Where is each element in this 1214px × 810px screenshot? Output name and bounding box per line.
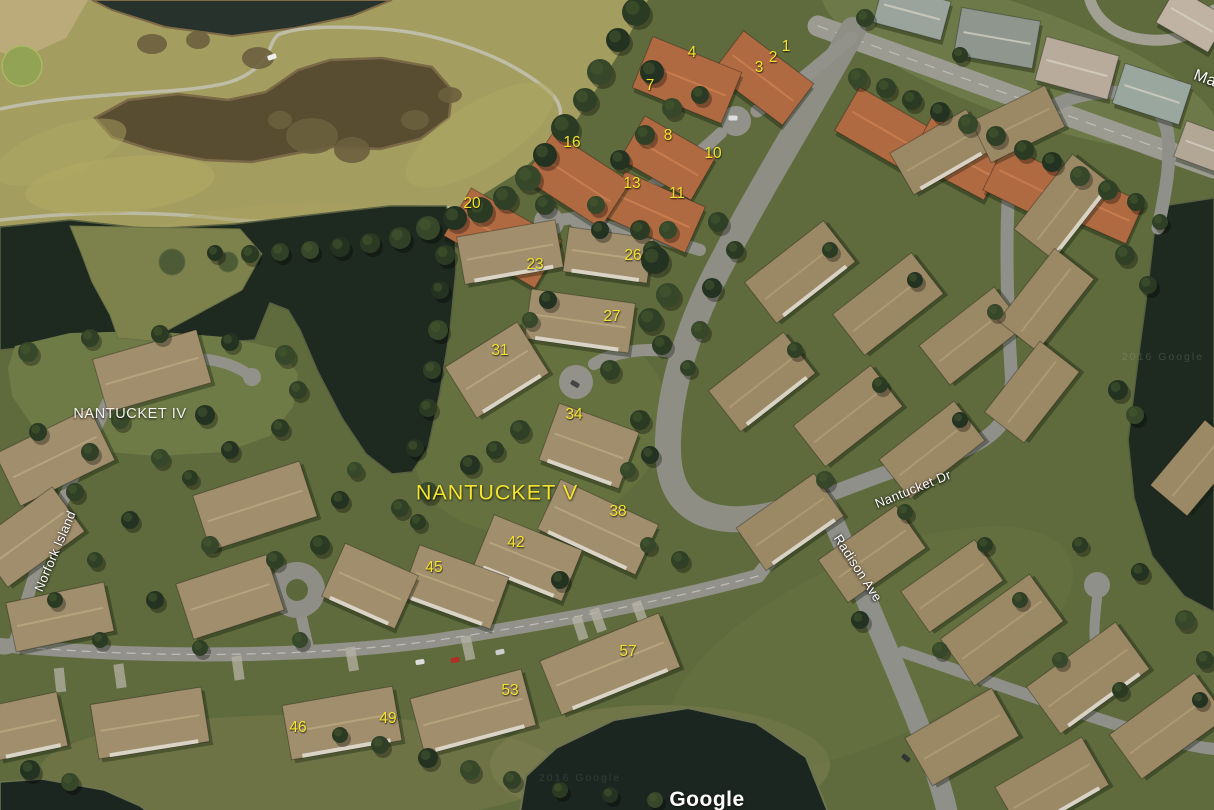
- aerial-imagery: [0, 0, 1214, 810]
- map-viewport[interactable]: 1234781016131120232627313438424557534946…: [0, 0, 1214, 810]
- car: [729, 116, 738, 121]
- google-logo[interactable]: Google: [669, 788, 744, 810]
- golf-tree-clump: [334, 137, 370, 163]
- chipping-green: [159, 249, 185, 275]
- golf-tree-clump: [268, 111, 292, 129]
- golf-tree-clump: [137, 34, 167, 54]
- golf-tree-clump: [186, 31, 210, 49]
- golf-tree-clump: [401, 110, 429, 130]
- golf-tree-clump: [438, 87, 462, 103]
- putting-green: [2, 46, 42, 86]
- golf-tree-clump: [286, 118, 338, 154]
